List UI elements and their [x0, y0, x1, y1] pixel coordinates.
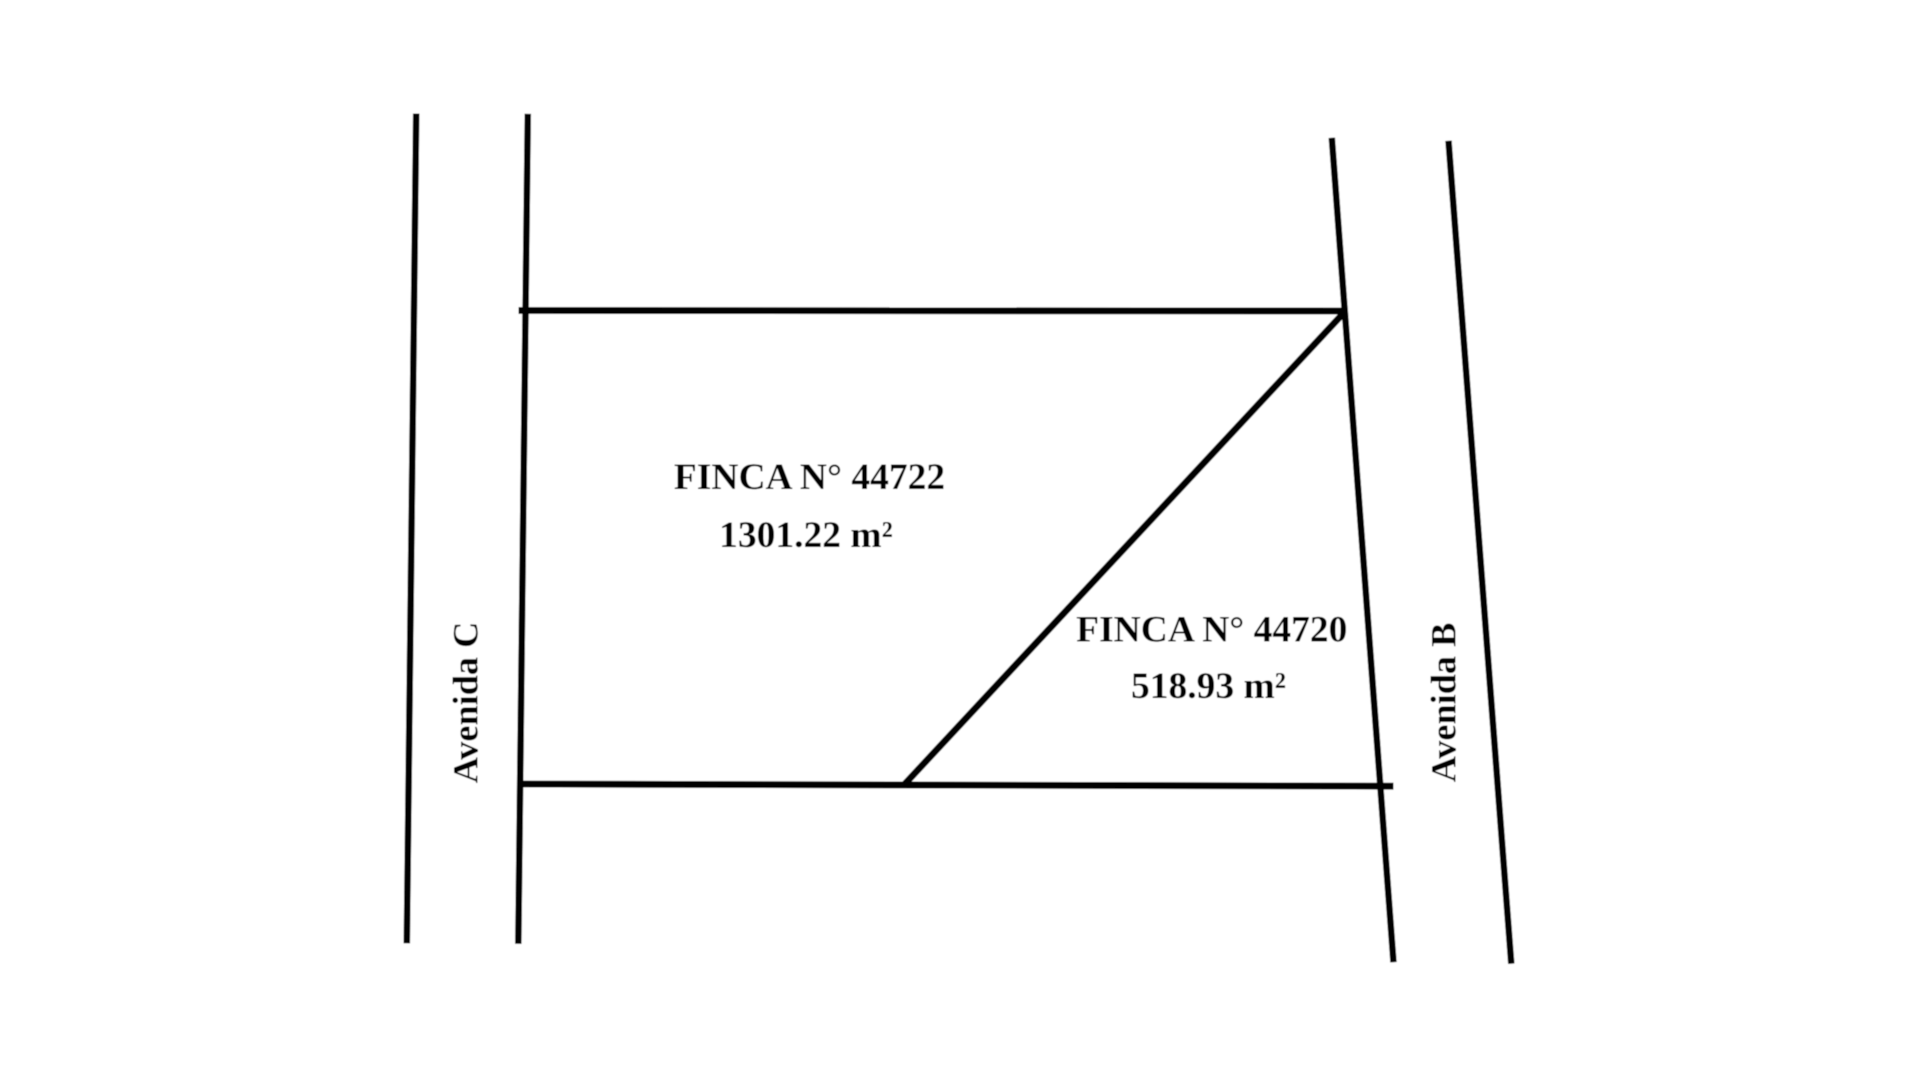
svg-text:518.93 m²: 518.93 m² [1131, 666, 1286, 707]
svg-text:Avenida B: Avenida B [1424, 623, 1464, 783]
svg-text:FINCA N° 44722: FINCA N° 44722 [674, 457, 945, 498]
svg-text:1301.22 m²: 1301.22 m² [719, 515, 893, 556]
svg-text:FINCA N° 44720: FINCA N° 44720 [1076, 610, 1347, 651]
svg-text:Avenida C: Avenida C [446, 622, 486, 784]
